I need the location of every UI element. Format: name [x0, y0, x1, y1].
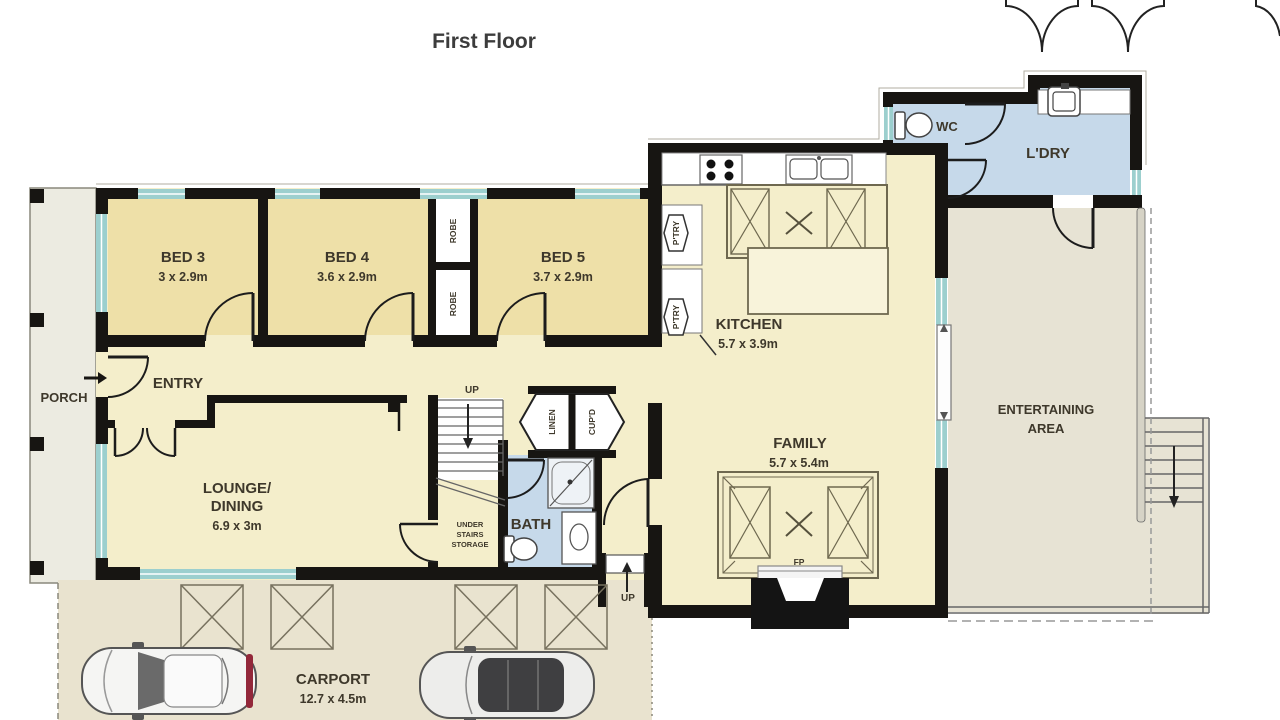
- shower-icon: [548, 458, 594, 508]
- label-entry: ENTRY: [153, 375, 203, 392]
- floor-plan-page: First Floor PORCH ENTRY BED 3 3 x 2.9m B…: [0, 0, 1280, 720]
- label-bed5: BED 5: [541, 249, 585, 266]
- label-family-dims: 5.7 x 5.4m: [769, 456, 829, 470]
- label-fireplace: FP: [794, 557, 805, 567]
- label-bed4-dims: 3.6 x 2.9m: [317, 270, 377, 284]
- vanity-basin-icon: [562, 512, 596, 564]
- car-icon: [82, 642, 256, 720]
- label-storage-2: STAIRS: [457, 530, 484, 539]
- label-robe-top: ROBE: [448, 218, 458, 243]
- car-icon: [420, 646, 594, 720]
- label-robe-bottom: ROBE: [448, 291, 458, 316]
- label-pantry-top: P'TRY: [671, 220, 681, 245]
- label-rear-up: UP: [621, 593, 635, 604]
- label-storage-1: UNDER: [457, 520, 484, 529]
- room-porch: [30, 188, 96, 583]
- label-stairs-up: UP: [465, 385, 479, 396]
- sink-icon: [786, 155, 852, 184]
- page-title: First Floor: [432, 30, 536, 53]
- label-bed3-dims: 3 x 2.9m: [158, 270, 207, 284]
- label-porch: PORCH: [41, 390, 88, 405]
- upper-floor-door-arcs-icon: [1006, 0, 1280, 52]
- label-pantry-bottom: P'TRY: [671, 304, 681, 329]
- label-lounge-1: LOUNGE/: [203, 480, 272, 497]
- label-laundry: L'DRY: [1026, 145, 1070, 162]
- label-entertaining-2: AREA: [1028, 421, 1065, 436]
- toilet-icon: [504, 536, 537, 562]
- meals-table: [748, 248, 888, 314]
- label-bed4: BED 4: [325, 249, 370, 266]
- label-lounge-2: DINING: [211, 498, 264, 515]
- label-carport-dims: 12.7 x 4.5m: [300, 692, 367, 706]
- label-linen: LINEN: [547, 409, 557, 435]
- label-bed5-dims: 3.7 x 2.9m: [533, 270, 593, 284]
- label-wc: WC: [936, 119, 958, 134]
- label-cupd: CUP'D: [587, 409, 597, 435]
- cooktop-icon: [700, 155, 742, 184]
- label-kitchen-dims: 5.7 x 3.9m: [718, 337, 778, 351]
- wc-toilet-icon: [895, 112, 932, 139]
- sliding-door: [937, 325, 951, 420]
- label-lounge-dims: 6.9 x 3m: [212, 519, 261, 533]
- linen-cupboard: [520, 394, 624, 450]
- label-family: FAMILY: [773, 435, 827, 452]
- fireplace-icon: [751, 566, 849, 629]
- label-storage-3: STORAGE: [452, 540, 489, 549]
- room-bedrooms: [108, 199, 648, 335]
- label-carport: CARPORT: [296, 671, 370, 688]
- label-bed3: BED 3: [161, 249, 205, 266]
- label-kitchen: KITCHEN: [716, 316, 783, 333]
- floor-plan-svg: First Floor PORCH ENTRY BED 3 3 x 2.9m B…: [0, 0, 1280, 720]
- label-entertaining-1: ENTERTAINING: [998, 402, 1095, 417]
- label-bath: BATH: [511, 516, 552, 533]
- upper-wall-line: [1137, 208, 1145, 522]
